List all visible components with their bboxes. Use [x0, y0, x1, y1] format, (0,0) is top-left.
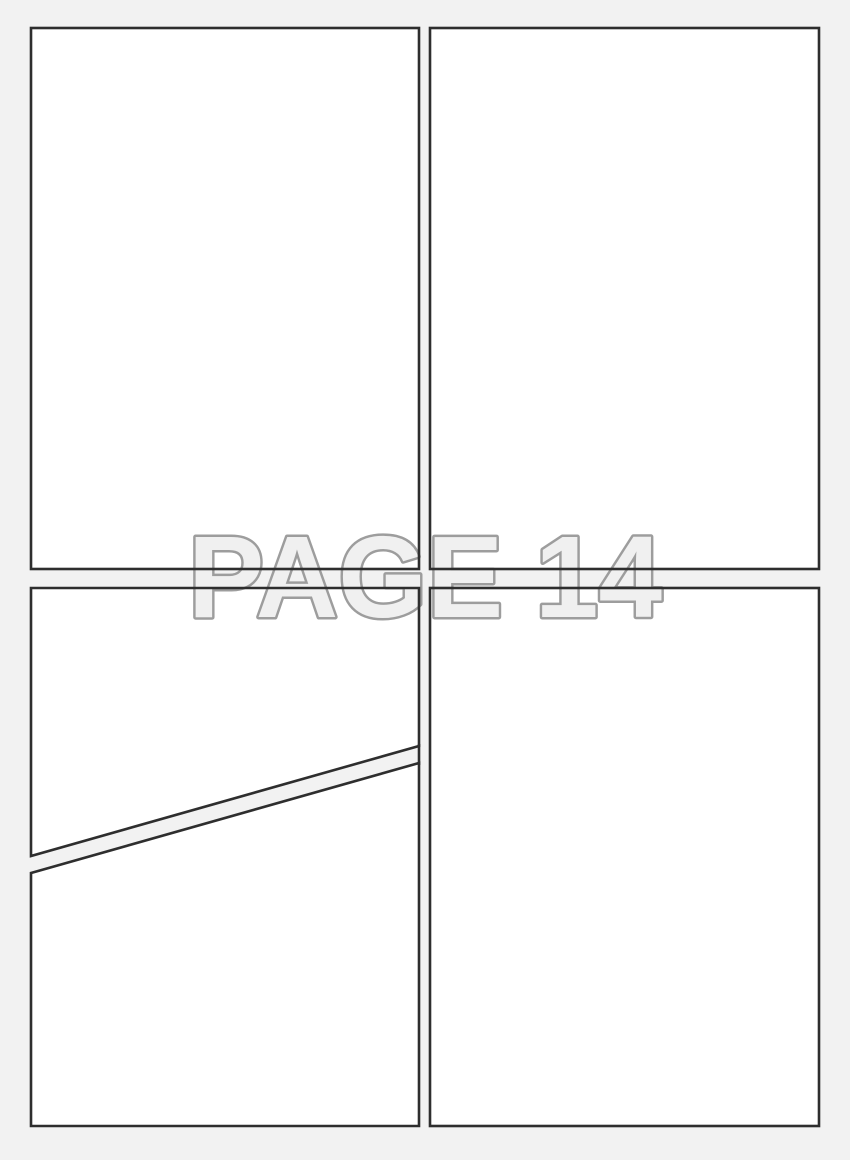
panel-bottom-right: [430, 588, 819, 1126]
comic-page-template: PAGE 14: [0, 0, 850, 1160]
page-number-watermark: PAGE 14: [188, 512, 662, 642]
panel-top-right: [430, 28, 819, 569]
comic-page-canvas: PAGE 14: [0, 0, 850, 1160]
panel-top-left: [31, 28, 419, 569]
